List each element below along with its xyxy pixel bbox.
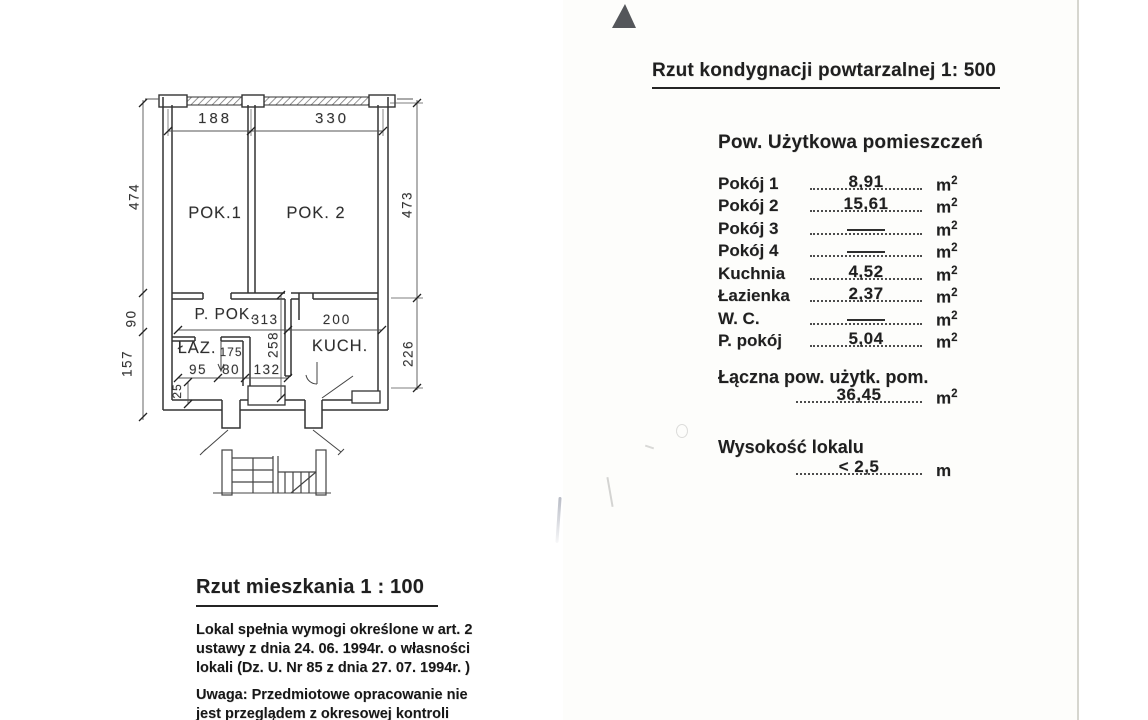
row-label: W. C. xyxy=(718,309,810,329)
row-unit-base: m xyxy=(936,176,951,195)
row-value: 4,52 xyxy=(810,262,922,282)
row-unit-base: m xyxy=(936,221,951,240)
room-label-laz: ŁAZ. xyxy=(171,339,223,358)
area-row: Pokój 1 8,91 m2 xyxy=(718,171,978,194)
area-row: P. pokój 5,04 m2 xyxy=(718,329,978,352)
kitchen-niche xyxy=(352,391,380,403)
note-label: Uwaga: xyxy=(196,687,248,703)
row-leader: 4,52 xyxy=(810,264,922,284)
row-leader xyxy=(810,219,922,239)
height-label: Wysokość lokalu xyxy=(718,437,864,458)
row-unit: m2 xyxy=(936,243,958,261)
area-row: Pokój 2 15,61 m2 xyxy=(718,194,978,217)
bath-fixture xyxy=(248,386,285,405)
row-value: 5,04 xyxy=(810,329,922,349)
room-label-kuch: KUCH. xyxy=(306,337,374,356)
dim-label-226: 226 xyxy=(401,337,416,371)
row-value: 2,37 xyxy=(810,284,922,304)
total-unit-sup: 2 xyxy=(951,388,957,400)
row-leader: 5,04 xyxy=(810,331,922,351)
row-label: Pokój 1 xyxy=(718,174,810,194)
total-value: 36,45 xyxy=(796,385,922,405)
row-unit: m2 xyxy=(936,221,958,239)
row-leader: 8,91 xyxy=(810,174,922,194)
scan-smudge xyxy=(555,497,561,543)
dotted-leader xyxy=(810,233,922,235)
dim-label-473: 473 xyxy=(400,188,415,222)
staircase xyxy=(213,450,331,495)
row-value: 8,91 xyxy=(810,172,922,192)
dim-label-132: 132 xyxy=(251,362,283,377)
legal-line: Lokal spełnia wymogi określone w art. 2 xyxy=(196,621,476,640)
note-paragraph: Uwaga: Przedmiotowe opracowanie nie jest… xyxy=(196,686,476,720)
floor-plan: 188 330 474 90 157 473 226 258 25 POK.1 … xyxy=(95,80,440,505)
row-label: P. pokój xyxy=(718,331,810,351)
dim-label-330: 330 xyxy=(315,110,349,127)
row-leader xyxy=(810,309,922,329)
window-band xyxy=(163,97,395,105)
row-unit: m2 xyxy=(936,333,958,351)
row-unit-sup: 2 xyxy=(951,197,957,209)
triangle-marker xyxy=(612,4,636,28)
row-unit-sup: 2 xyxy=(951,242,957,254)
dim-label-313: 313 xyxy=(248,312,282,327)
row-dash xyxy=(847,229,885,231)
row-unit: m2 xyxy=(936,198,958,216)
row-unit-sup: 2 xyxy=(951,287,957,299)
dim-label-95: 95 xyxy=(184,362,212,377)
total-unit: m2 xyxy=(936,389,958,407)
note-text-1: Przedmiotowe opracowanie nie xyxy=(248,687,468,703)
row-label: Pokój 4 xyxy=(718,241,810,261)
row-unit-base: m xyxy=(936,311,951,330)
height-row: < 2,5 m xyxy=(796,459,951,479)
row-unit: m2 xyxy=(936,176,958,194)
row-unit-sup: 2 xyxy=(951,265,957,277)
area-row: Łazienka 2,37 m2 xyxy=(718,284,978,307)
row-unit-base: m xyxy=(936,288,951,307)
sheet-edge-line xyxy=(1077,0,1079,720)
row-label: Pokój 3 xyxy=(718,219,810,239)
right-sheet-tint xyxy=(563,0,1078,720)
plan-scale-title: Rzut mieszkania 1 : 100 xyxy=(196,576,438,607)
row-unit-base: m xyxy=(936,333,951,352)
row-unit-base: m xyxy=(936,198,951,217)
row-leader xyxy=(810,241,922,261)
dim-label-90: 90 xyxy=(124,302,139,336)
scanned-document-page: 188 330 474 90 157 473 226 258 25 POK.1 … xyxy=(0,0,1148,720)
row-label: Kuchnia xyxy=(718,264,810,284)
dotted-leader xyxy=(810,255,922,257)
room-label-pok2: POK. 2 xyxy=(282,204,350,223)
area-row: W. C. m2 xyxy=(718,306,978,329)
row-leader: 2,37 xyxy=(810,286,922,306)
dim-label-258: 258 xyxy=(266,328,281,362)
row-unit-base: m xyxy=(936,266,951,285)
row-dash xyxy=(847,319,885,321)
area-row: Kuchnia 4,52 m2 xyxy=(718,261,978,284)
note-text-2: jest przeglądem z okresowej kontroli xyxy=(196,705,476,720)
dim-label-175: 175 xyxy=(217,345,245,359)
row-value: 15,61 xyxy=(810,194,922,214)
legal-paragraph: Lokal spełnia wymogi określone w art. 2 … xyxy=(196,621,476,678)
row-label: Łazienka xyxy=(718,286,810,306)
row-unit: m2 xyxy=(936,266,958,284)
dim-label-80: 80 xyxy=(217,362,245,377)
areas-table-rows: Pokój 1 8,91 m2 Pokój 2 15,61 m2 Pokój 3 xyxy=(718,171,978,351)
note-line: Uwaga: Przedmiotowe opracowanie nie xyxy=(196,686,476,705)
row-dash xyxy=(847,251,885,253)
total-area-row: 36,45 m2 xyxy=(796,387,958,407)
room-label-pok1: POK.1 xyxy=(181,204,249,223)
row-unit: m2 xyxy=(936,311,958,329)
height-unit: m xyxy=(936,462,951,479)
row-unit-sup: 2 xyxy=(951,332,957,344)
area-row: Pokój 4 m2 xyxy=(718,239,978,262)
row-unit-sup: 2 xyxy=(951,175,957,187)
legal-line: lokali (Dz. U. Nr 85 z dnia 27. 07. 1994… xyxy=(196,659,476,678)
row-unit: m2 xyxy=(936,288,958,306)
row-unit-base: m xyxy=(936,243,951,262)
height-leader: < 2,5 xyxy=(796,459,922,479)
row-leader: 15,61 xyxy=(810,196,922,216)
dim-label-188: 188 xyxy=(198,110,232,127)
row-unit-sup: 2 xyxy=(951,310,957,322)
legal-line: ustawy z dnia 24. 06. 1994r. o własności xyxy=(196,640,476,659)
area-row: Pokój 3 m2 xyxy=(718,216,978,239)
total-leader: 36,45 xyxy=(796,387,922,407)
scan-smudge xyxy=(676,424,688,438)
dotted-leader xyxy=(810,323,922,325)
dim-label-200: 200 xyxy=(320,312,354,327)
dim-label-25: 25 xyxy=(170,374,184,408)
page-title: Rzut kondygnacji powtarzalnej 1: 500 xyxy=(652,60,1000,89)
dim-label-474: 474 xyxy=(127,180,142,214)
total-unit-base: m xyxy=(936,389,951,408)
dim-label-157: 157 xyxy=(120,347,135,381)
areas-table-title: Pow. Użytkowa pomieszczeń xyxy=(718,132,983,154)
floor-plan-drawing xyxy=(95,80,440,505)
height-value: < 2,5 xyxy=(796,457,922,477)
row-label: Pokój 2 xyxy=(718,196,810,216)
row-unit-sup: 2 xyxy=(951,220,957,232)
